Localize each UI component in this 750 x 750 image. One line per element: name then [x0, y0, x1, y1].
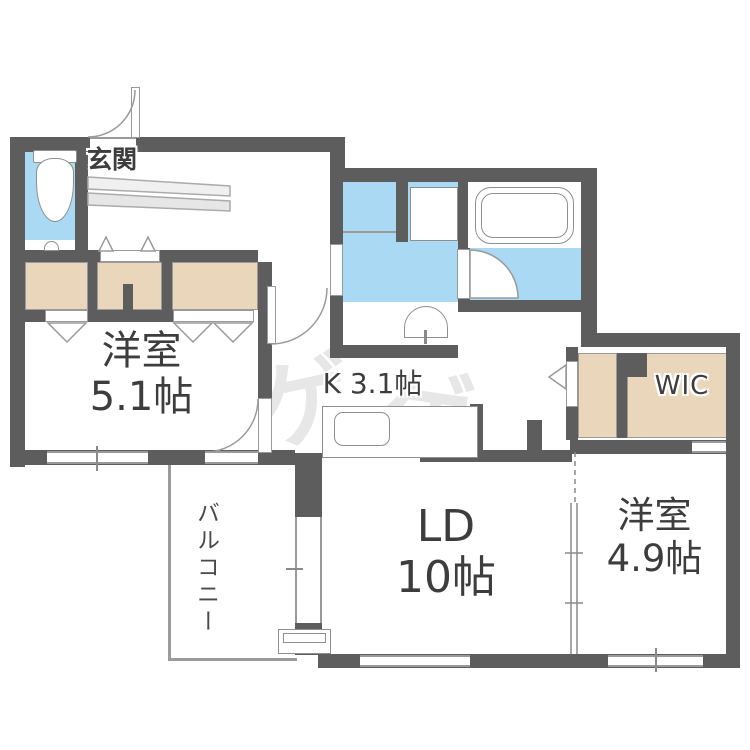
floorplan: ゲ ゲ — [0, 0, 750, 750]
wall-segment — [10, 137, 25, 467]
living-size: 10帖 — [322, 553, 570, 604]
window-tick — [655, 648, 657, 672]
kitchen-sink-icon — [334, 412, 390, 446]
wall-segment — [581, 168, 597, 347]
bifold-door-mark — [141, 237, 155, 251]
closet-door-arrow — [549, 365, 566, 389]
wic-label: WIC — [642, 372, 722, 402]
bedroom1-name: 洋室 — [25, 328, 258, 374]
bedroom1-label: 洋室 5.1帖 — [25, 328, 258, 420]
bath-door-leaf — [457, 249, 470, 299]
closet-right — [172, 262, 258, 310]
balcony-label: バルコニー — [192, 483, 218, 653]
closet-door-band — [45, 310, 88, 322]
wall-segment — [136, 137, 345, 152]
kitchen-label: K 3.1帖 — [300, 368, 445, 400]
hall-door-arc — [271, 288, 327, 344]
bedroom2-size: 4.9帖 — [583, 538, 726, 581]
wall-segment — [396, 182, 408, 242]
window-tick — [96, 446, 98, 471]
window — [360, 655, 470, 667]
wall-segment — [88, 262, 97, 310]
wall-segment — [123, 284, 133, 310]
entrance-label: 玄関 — [82, 146, 142, 175]
window — [295, 517, 322, 623]
entrance-door-arc — [88, 90, 135, 137]
bedroom1-door-leaf — [258, 398, 272, 453]
wic-opening — [692, 441, 726, 453]
wall-segment — [726, 340, 740, 668]
wall-segment — [617, 353, 627, 438]
small-sink-icon — [44, 241, 59, 251]
heater-inner — [283, 633, 326, 643]
wall-segment — [527, 420, 542, 462]
wall-segment — [25, 310, 45, 322]
wall-segment — [162, 262, 172, 310]
washroom-counter-line — [343, 231, 396, 233]
washer-pan-icon — [410, 187, 458, 241]
hall-door-leaf — [267, 286, 276, 344]
bedroom2-name: 洋室 — [583, 495, 726, 538]
wall-segment — [88, 310, 173, 322]
closet-door-band — [100, 250, 160, 262]
bedroom2-label: 洋室 4.9帖 — [583, 495, 726, 580]
entrance-step — [88, 177, 230, 196]
window-tick — [286, 568, 303, 570]
entrance-door-leaf — [131, 87, 140, 138]
living-name: LD — [322, 502, 570, 553]
bathtub-inner — [481, 193, 568, 238]
bedroom1-size: 5.1帖 — [25, 374, 258, 420]
wall-segment — [458, 300, 581, 312]
closet-east-door-leaf — [566, 361, 578, 407]
washroom-sliding-door — [330, 244, 343, 296]
wall-segment — [581, 333, 740, 347]
closet-door-band — [173, 310, 254, 322]
entrance-step — [88, 193, 230, 211]
living-label: LD 10帖 — [322, 502, 570, 603]
bifold-door-mark — [99, 237, 113, 251]
washbasin-tick — [424, 330, 427, 344]
closet-left — [25, 262, 88, 310]
wall-segment — [330, 345, 458, 358]
closet-east — [578, 353, 617, 438]
window — [205, 451, 258, 464]
wall-segment — [343, 168, 595, 182]
